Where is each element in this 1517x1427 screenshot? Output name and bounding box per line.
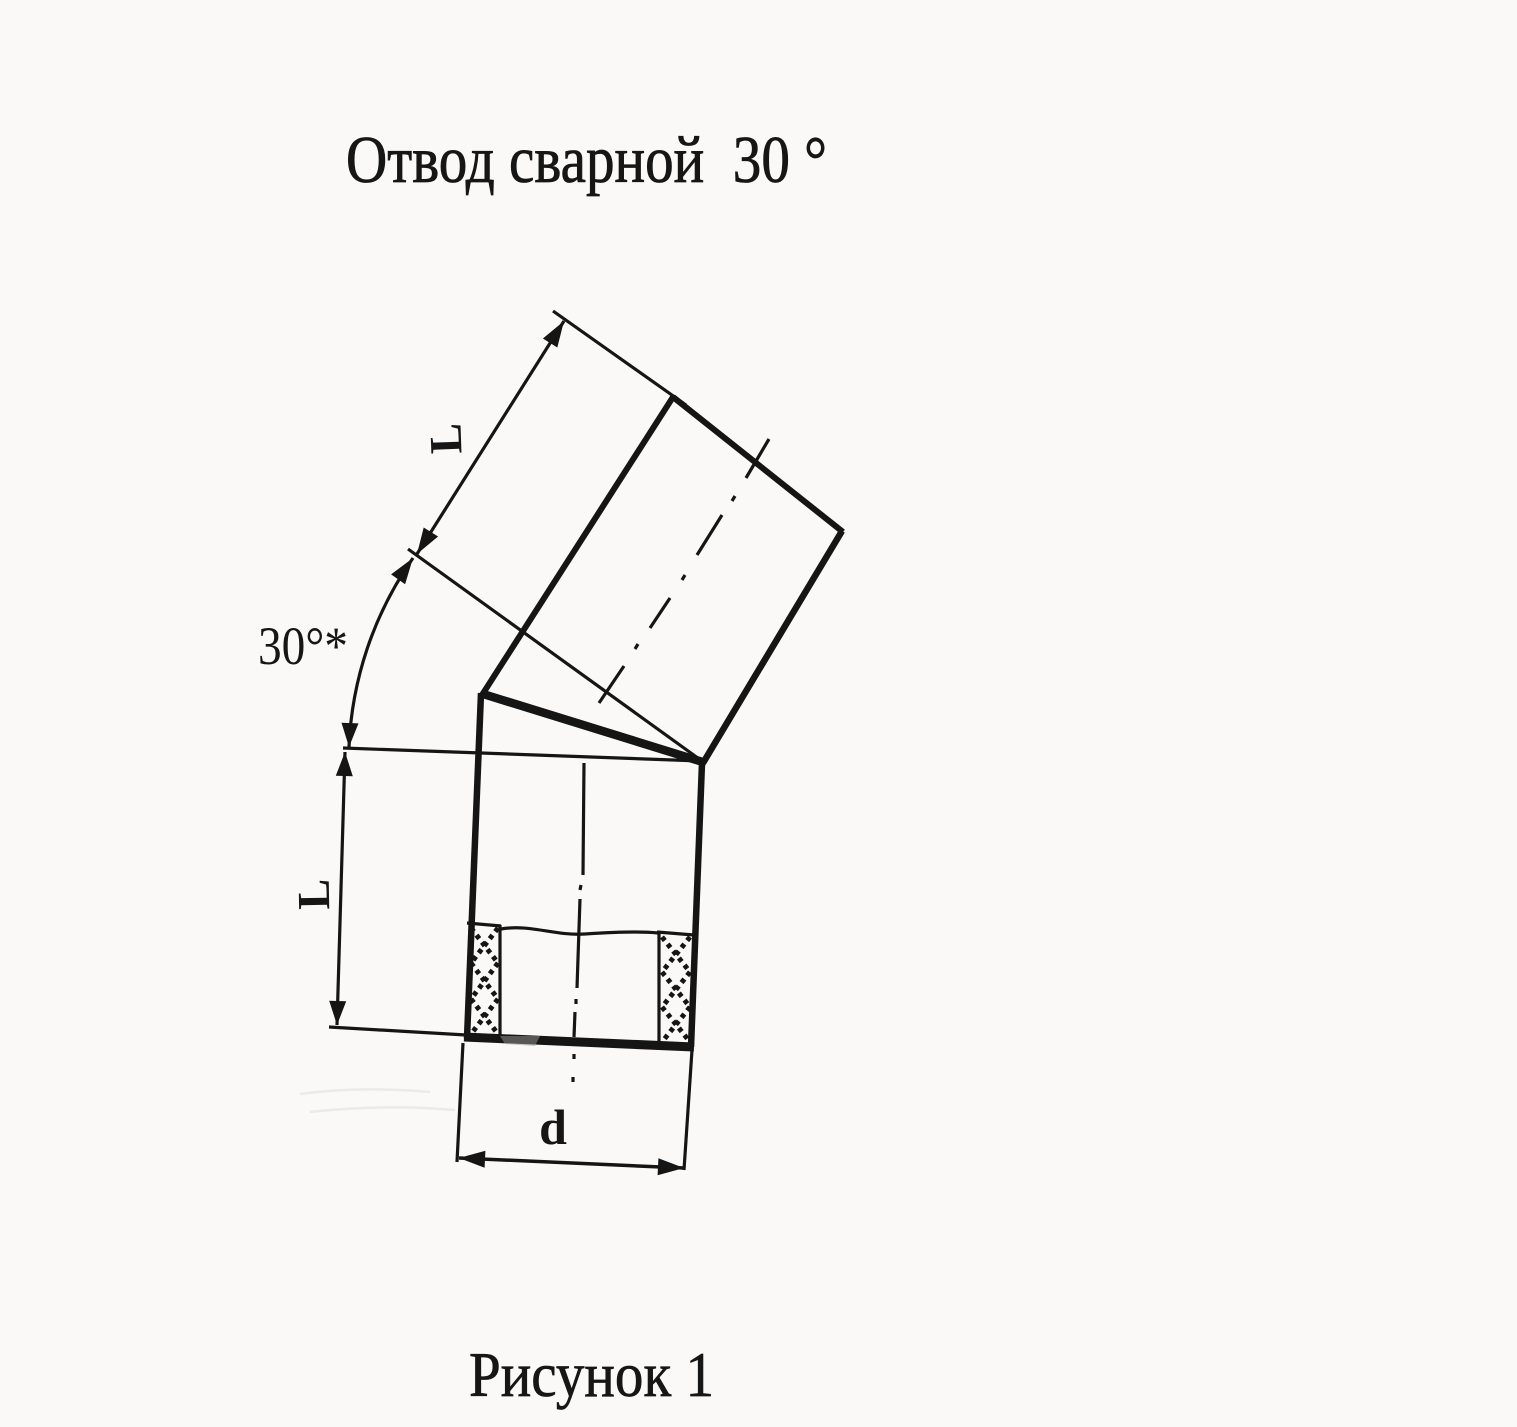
svg-text:30°*: 30°*	[258, 616, 348, 676]
svg-text:d: d	[539, 1099, 567, 1155]
svg-text:L: L	[419, 422, 471, 454]
svg-text:Рисунок 1: Рисунок 1	[469, 1340, 714, 1410]
svg-text:L: L	[288, 878, 340, 910]
svg-text:Отвод сварной 30 °: Отвод сварной 30 °	[346, 123, 827, 197]
